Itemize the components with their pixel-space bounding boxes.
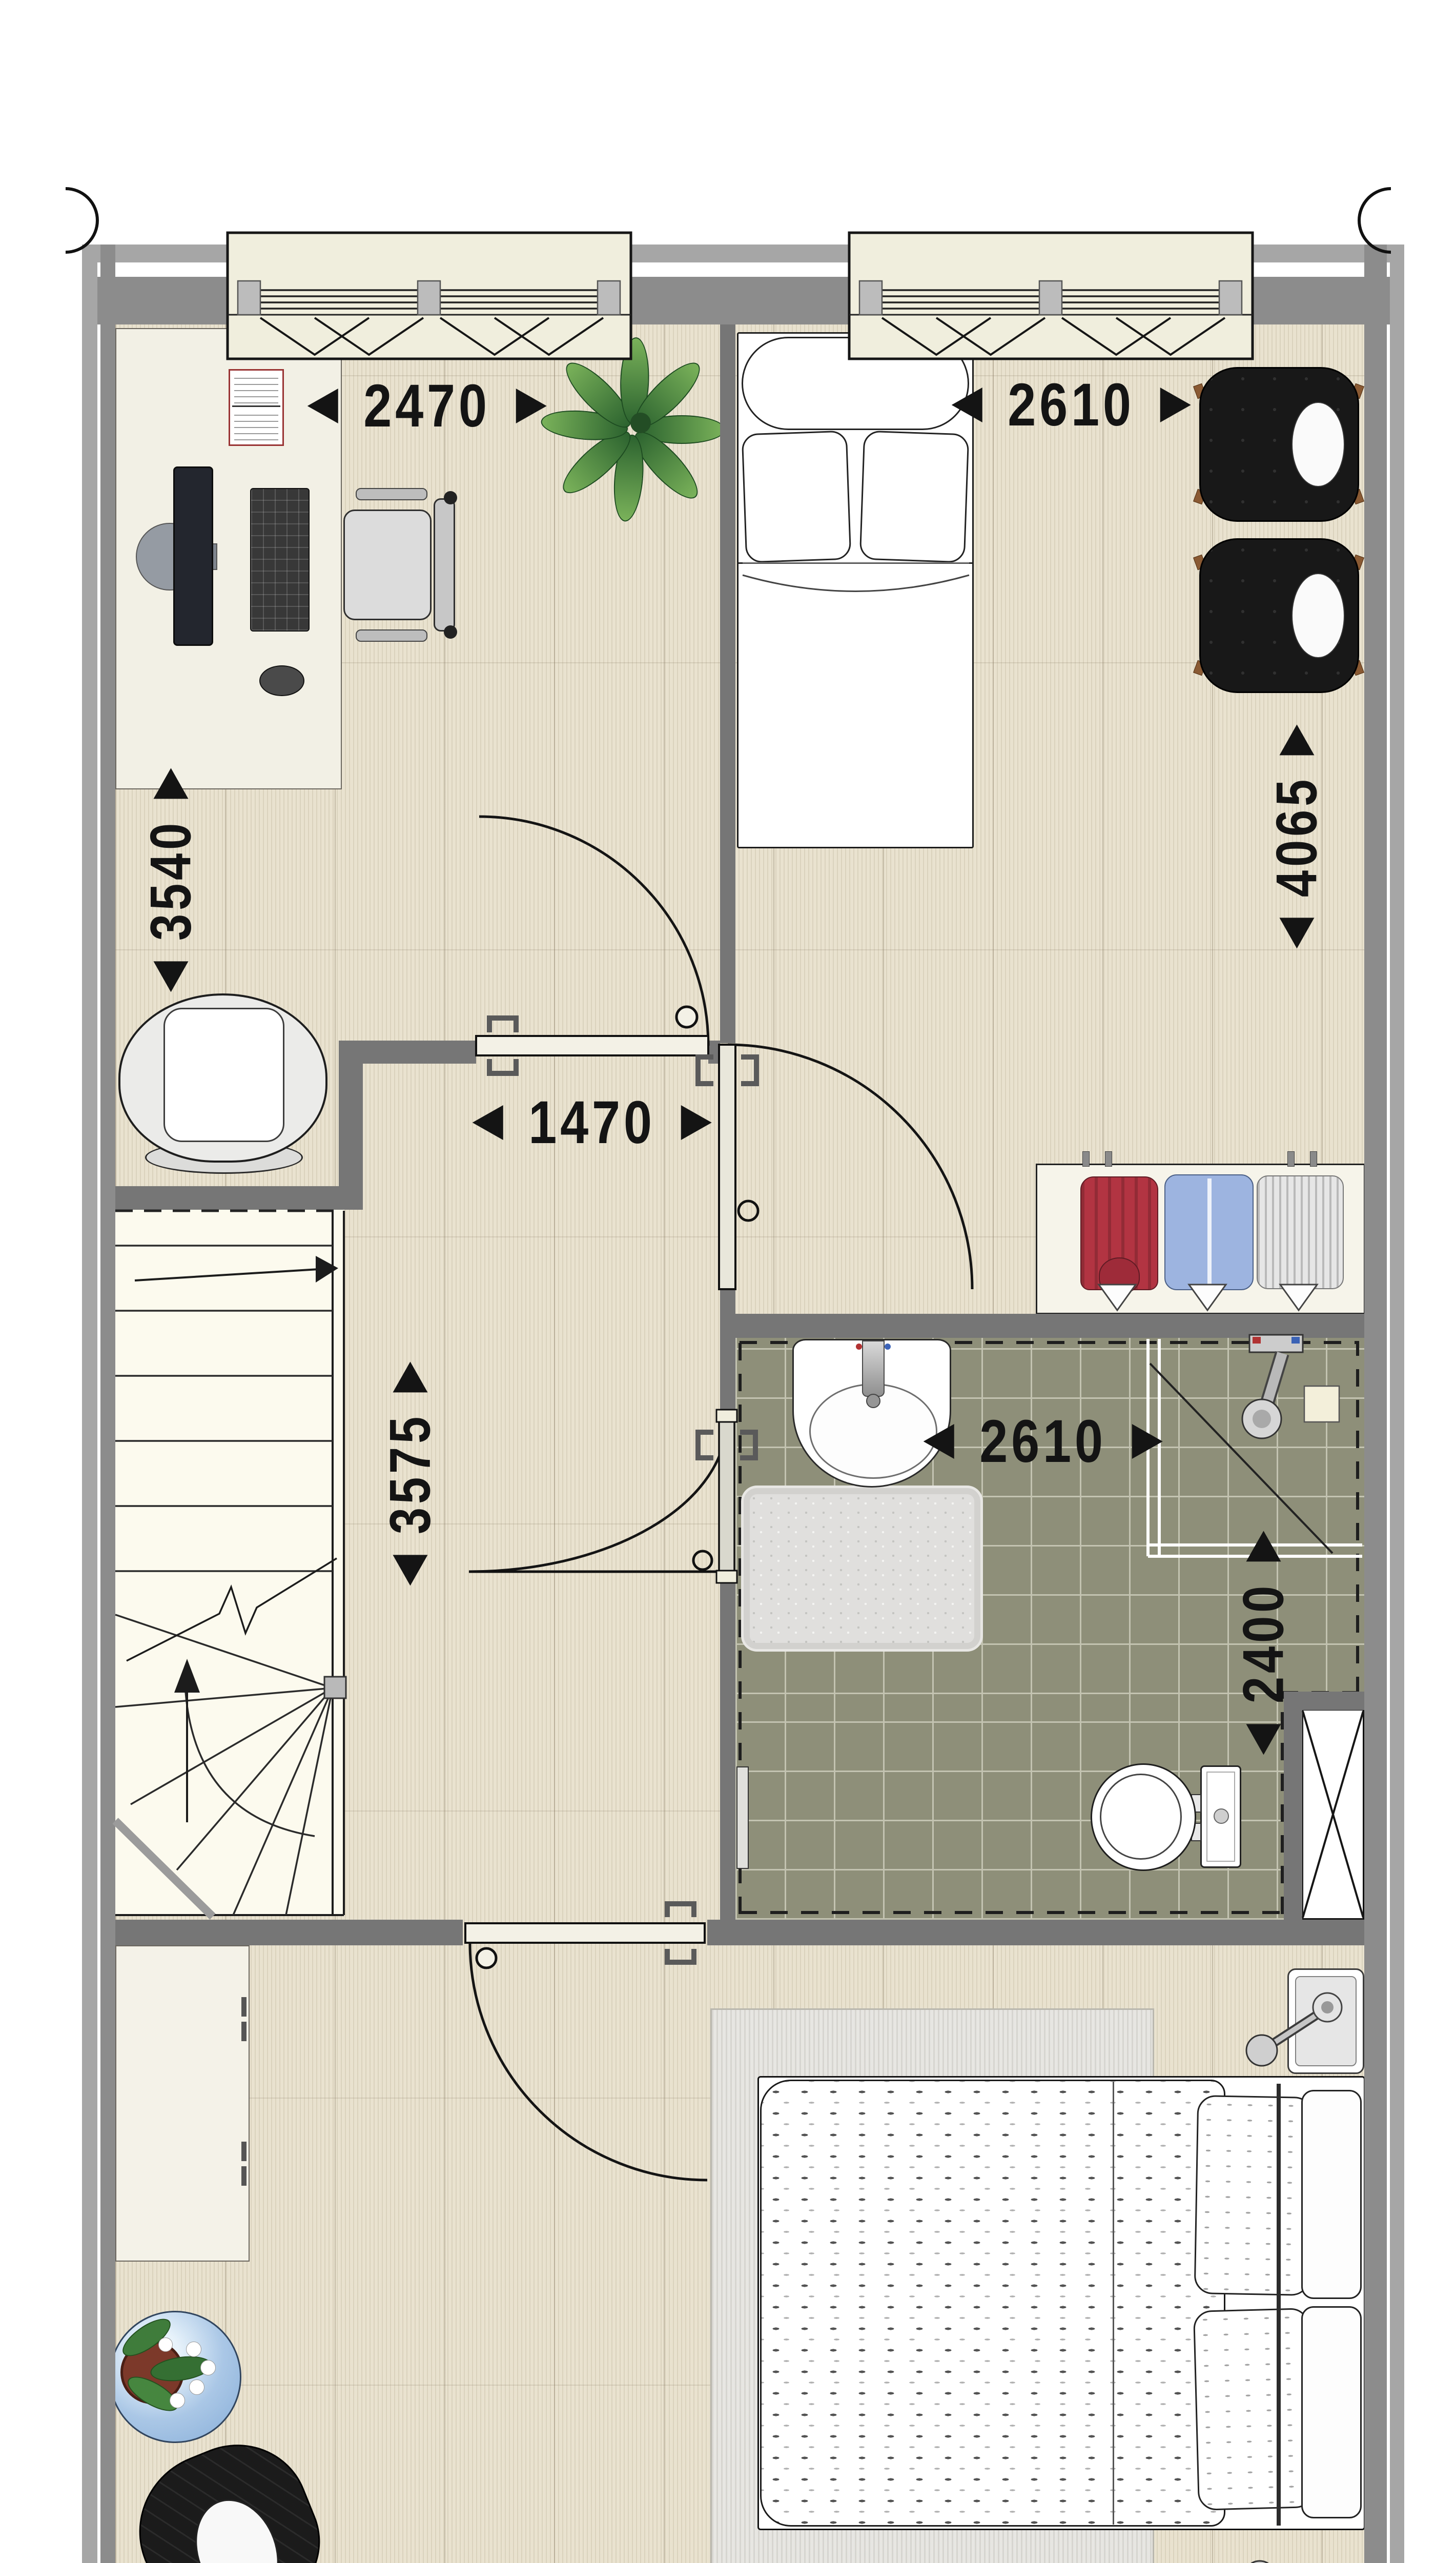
dim-value: 2400 [1231, 1582, 1297, 1703]
dim-value: 2610 [1008, 370, 1134, 440]
duct-shaft-cross [1303, 1711, 1363, 1918]
dimension-bedroom1-width: 2610 [952, 370, 1191, 440]
dim-arrow-right-icon [1160, 388, 1191, 422]
dim-arrow-up-icon [153, 768, 188, 799]
door-bathroom [469, 1410, 755, 1583]
dim-value: 2610 [979, 1407, 1106, 1476]
hot-mark-icon [1253, 1337, 1261, 1344]
door-knob-icon [676, 1007, 697, 1027]
dim-value: 1470 [528, 1088, 655, 1157]
stair-direction-arrow-icon [316, 1256, 338, 1283]
dimension-bathroom-width: 2610 [924, 1407, 1163, 1476]
dim-arrow-up-icon [393, 1361, 427, 1392]
door-knob-icon [693, 1551, 712, 1570]
dim-value: 4065 [1264, 776, 1330, 897]
door-bedroom2 [465, 1904, 707, 2180]
bed-fold-lines [743, 563, 969, 592]
dim-arrow-left-icon [307, 389, 338, 423]
dim-arrow-up-icon [1279, 724, 1314, 755]
dim-arrow-left-icon [952, 388, 982, 422]
dimension-bathroom-depth: 2400 [1231, 1531, 1297, 1755]
basin-faucet [1244, 2561, 1342, 2563]
dim-arrow-right-icon [681, 1105, 711, 1140]
dim-arrow-down-icon [1246, 1724, 1281, 1755]
cold-mark-icon [1291, 1337, 1300, 1344]
dimension-study-width: 2470 [307, 371, 547, 441]
dim-arrow-left-icon [924, 1424, 954, 1459]
shower [1148, 1335, 1362, 1556]
dim-value: 2470 [363, 371, 490, 441]
floor-plan: 2470 2610 3540 1470 4065 3575 2610 2400 [0, 0, 1456, 2563]
dim-arrow-down-icon [393, 1555, 427, 1586]
door-study [476, 817, 708, 1073]
dimension-bedroom1-depth: 4065 [1264, 724, 1330, 948]
door-knob-icon [739, 1201, 758, 1221]
stair-break-line [127, 1558, 337, 1661]
dim-value: 3540 [138, 820, 204, 941]
dimension-study-depth: 3540 [138, 768, 204, 992]
dim-arrow-right-icon [516, 389, 546, 423]
window-icon [228, 233, 631, 359]
shower-shelf [1304, 1386, 1339, 1422]
dim-arrow-left-icon [473, 1105, 503, 1140]
dim-value: 3575 [377, 1413, 443, 1534]
staircase [115, 1211, 346, 1917]
plan-linework [0, 0, 1456, 2563]
stair-up-arrow-icon [174, 1659, 200, 1693]
basin-faucet [1246, 1993, 1342, 2066]
window-icon [849, 233, 1253, 359]
dim-arrow-up-icon [1246, 1531, 1281, 1561]
dimension-landing-width: 1470 [473, 1088, 712, 1157]
door-bedroom1 [698, 1045, 972, 1289]
dimension-landing-depth: 3575 [377, 1361, 443, 1585]
door-knob-icon [477, 1948, 496, 1968]
dim-arrow-down-icon [1279, 918, 1314, 949]
towel-hanger-icon [1099, 1285, 1317, 1310]
dim-arrow-right-icon [1132, 1424, 1162, 1459]
dim-arrow-down-icon [153, 962, 188, 992]
